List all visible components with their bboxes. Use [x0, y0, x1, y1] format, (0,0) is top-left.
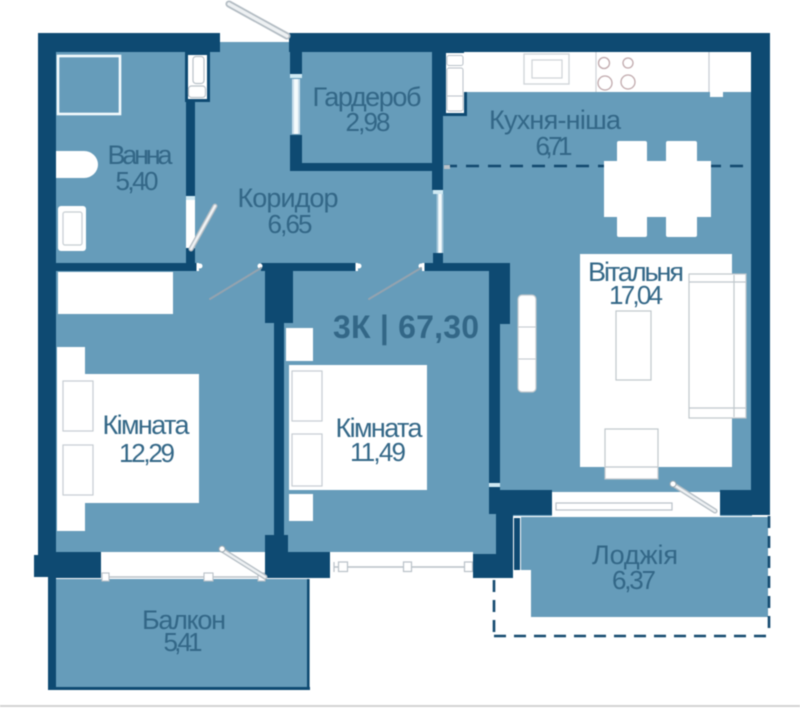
svg-text:11,49: 11,49: [350, 437, 406, 467]
svg-text:17,04: 17,04: [609, 280, 663, 310]
svg-text:6,71: 6,71: [536, 131, 573, 161]
svg-text:Кімната: Кімната: [103, 410, 191, 440]
svg-text:3К | 67,30: 3К | 67,30: [333, 309, 479, 345]
svg-text:6,65: 6,65: [268, 209, 313, 239]
svg-text:6,37: 6,37: [612, 565, 656, 595]
svg-text:12,29: 12,29: [119, 438, 175, 468]
svg-text:5,41: 5,41: [164, 627, 203, 657]
svg-text:2,98: 2,98: [346, 107, 391, 137]
svg-text:5,40: 5,40: [116, 166, 159, 196]
